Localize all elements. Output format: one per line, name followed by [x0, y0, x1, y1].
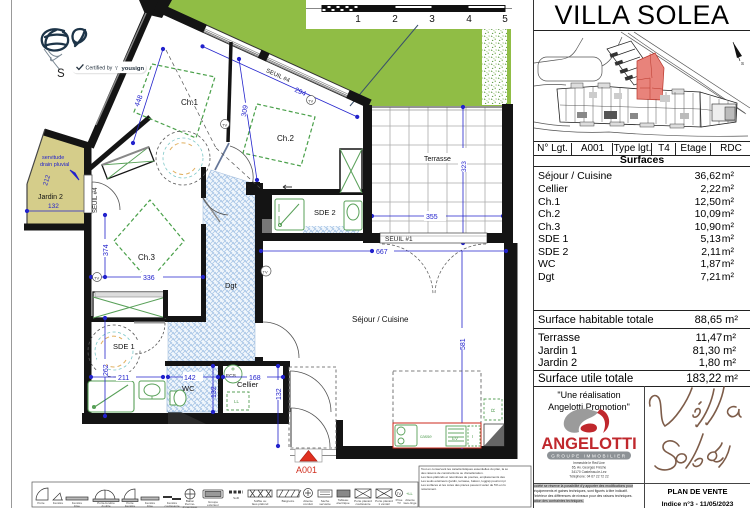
svg-text:Ch.1: Ch.1	[181, 98, 198, 107]
svg-text:lave-linge: lave-linge	[404, 501, 417, 505]
svg-text:extérieur: extérieur	[207, 503, 219, 507]
svg-text:ANGELOTTI: ANGELOTTI	[541, 435, 636, 453]
svg-text:1: 1	[355, 14, 361, 25]
svg-text:132: 132	[211, 386, 218, 398]
svg-text:TV: TV	[94, 276, 99, 281]
svg-text:servitude: servitude	[42, 155, 64, 161]
svg-text:coulissante: coulissante	[164, 504, 179, 508]
svg-text:Fenêtre: Fenêtre	[53, 501, 64, 505]
svg-text:2: 2	[392, 14, 398, 25]
svg-text:355: 355	[426, 214, 438, 221]
svg-text:Ch.2: Ch.2	[277, 134, 294, 143]
svg-text:TV: TV	[308, 99, 313, 104]
svg-text:667: 667	[376, 249, 388, 256]
svg-text:GROUPE IMMOBILIER: GROUPE IMMOBILIER	[551, 454, 626, 459]
svg-text:4: 4	[466, 14, 472, 25]
svg-text:132: 132	[48, 203, 59, 210]
svg-text:SEUIL #1: SEUIL #1	[385, 236, 413, 243]
svg-text:coulissante: coulissante	[355, 502, 370, 506]
svg-text:34170 Castelnau-le-Lez: 34170 Castelnau-le-Lez	[571, 470, 606, 474]
svg-text:Fenêtre: Fenêtre	[125, 504, 136, 508]
svg-text:conduit: conduit	[303, 502, 313, 506]
svg-text:TV: TV	[397, 501, 401, 505]
svg-text:Téléphone: 04 67 22 72 22: Téléphone: 04 67 22 72 22	[569, 475, 609, 479]
svg-text:Ch.3: Ch.3	[138, 253, 155, 262]
svg-text:1 vantail: 1 vantail	[378, 502, 390, 506]
svg-text:LL: LL	[234, 399, 240, 404]
svg-text:Immeuble le Red'Line: Immeuble le Red'Line	[573, 461, 605, 465]
svg-text:374: 374	[103, 244, 110, 256]
svg-text:notamment.: notamment.	[421, 487, 437, 491]
svg-text:Fixe: Fixe	[147, 504, 153, 508]
svg-text:Terrasse: Terrasse	[424, 156, 451, 163]
svg-text:SEUIL #4: SEUIL #4	[93, 187, 99, 213]
svg-text:323: 323	[461, 161, 468, 172]
svg-text:211: 211	[118, 375, 129, 382]
svg-text:I: I	[472, 434, 473, 439]
svg-text:électrique: électrique	[336, 501, 349, 505]
svg-text:65, Av. Georges Frêche: 65, Av. Georges Frêche	[572, 466, 607, 470]
svg-text:Sofil: Sofil	[233, 496, 239, 500]
svg-text:drain pluvial: drain pluvial	[40, 162, 69, 168]
svg-text:S: S	[741, 61, 744, 66]
svg-text:Porte: Porte	[37, 501, 45, 505]
svg-text:A001: A001	[296, 465, 317, 475]
svg-text:ECS: ECS	[226, 373, 236, 379]
svg-text:R: R	[491, 408, 497, 412]
svg-text:132: 132	[276, 388, 283, 400]
svg-text:Séjour / Cuisine: Séjour / Cuisine	[352, 315, 409, 324]
svg-text:168: 168	[249, 375, 261, 382]
svg-text:3: 3	[429, 14, 435, 25]
svg-text:yousign: yousign	[122, 66, 145, 72]
svg-text:faux-plafond: faux-plafond	[252, 502, 269, 506]
svg-text:TV: TV	[397, 492, 402, 496]
svg-text:Certified by: Certified by	[86, 66, 113, 72]
svg-text:142: 142	[184, 375, 196, 382]
svg-text:336: 336	[143, 275, 155, 282]
svg-text:TV: TV	[222, 123, 227, 128]
svg-text:581: 581	[460, 338, 467, 350]
svg-text:casse: casse	[420, 434, 432, 439]
svg-text:TV: TV	[263, 270, 268, 275]
svg-text:SDE 1: SDE 1	[113, 342, 135, 351]
svg-text:5: 5	[502, 14, 508, 25]
svg-text:+LL: +LL	[406, 491, 414, 496]
svg-text:Fixe: Fixe	[74, 504, 80, 508]
svg-text:EV: EV	[452, 436, 458, 441]
svg-text:262: 262	[103, 364, 110, 376]
svg-text:serviette: serviette	[319, 502, 331, 506]
svg-text:SDE 2: SDE 2	[314, 208, 336, 217]
svg-text:S: S	[57, 68, 65, 80]
svg-text:Baignoire: Baignoire	[282, 499, 295, 503]
svg-text:Dgt: Dgt	[225, 281, 238, 290]
svg-text:Jardin 2: Jardin 2	[38, 194, 63, 201]
svg-text:double: double	[101, 504, 110, 508]
